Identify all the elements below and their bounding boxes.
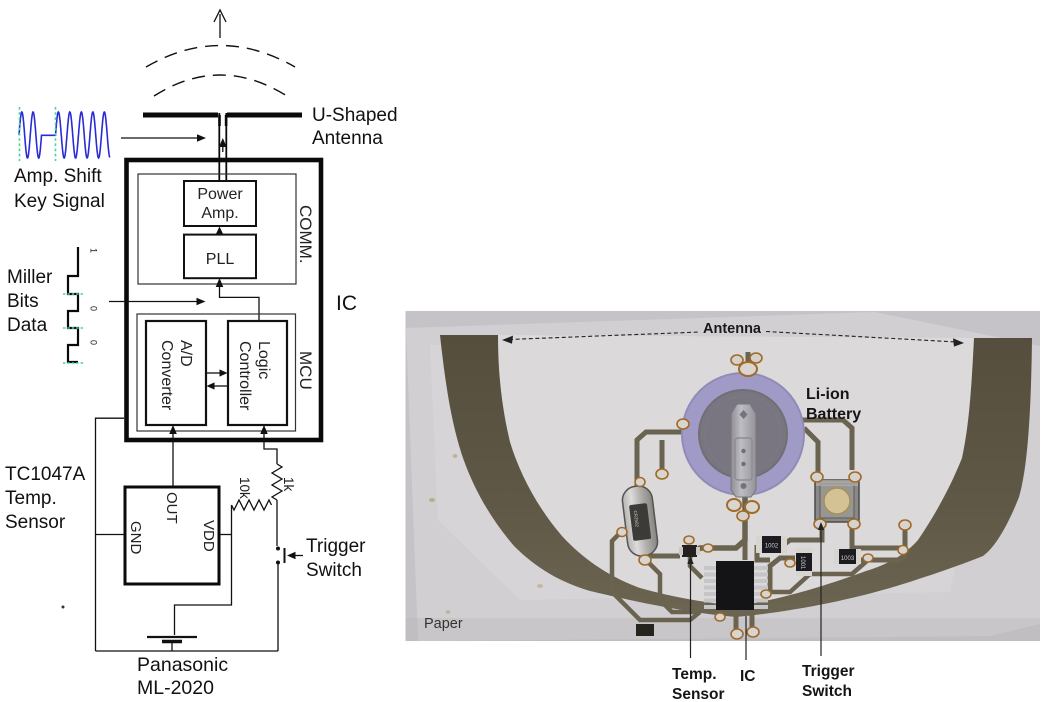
svg-text:Battery: Battery: [806, 406, 861, 423]
svg-text:VDD: VDD: [200, 520, 217, 552]
svg-text:Antenna: Antenna: [703, 321, 762, 337]
svg-text:Sensor: Sensor: [672, 686, 725, 702]
svg-text:0: 0: [89, 340, 99, 345]
svg-text:Temp.: Temp.: [672, 666, 717, 683]
svg-text:10k: 10k: [237, 477, 252, 499]
svg-text:1: 1: [89, 248, 99, 253]
svg-text:0: 0: [89, 306, 99, 311]
svg-text:1002: 1002: [765, 544, 779, 550]
svg-text:Li-ion: Li-ion: [806, 386, 850, 403]
svg-text:Antenna: Antenna: [312, 128, 383, 149]
svg-text:Switch: Switch: [306, 560, 362, 581]
svg-text:1k: 1k: [281, 477, 296, 492]
svg-text:Data: Data: [7, 315, 48, 336]
svg-text:IC: IC: [740, 668, 756, 685]
svg-text:IC: IC: [336, 292, 357, 315]
svg-text:Amp. Shift: Amp. Shift: [14, 166, 102, 187]
svg-text:GND: GND: [127, 521, 144, 555]
svg-text:Key Signal: Key Signal: [14, 191, 105, 212]
svg-text:Sensor: Sensor: [5, 512, 66, 533]
svg-text:OUT: OUT: [163, 492, 180, 524]
svg-text:Switch: Switch: [802, 683, 852, 700]
svg-text:COMM.: COMM.: [296, 205, 315, 264]
svg-text:PLL: PLL: [206, 251, 235, 268]
svg-text:1003: 1003: [841, 556, 855, 562]
svg-text:Miller: Miller: [7, 267, 53, 288]
svg-text:ML-2020: ML-2020: [137, 677, 214, 699]
svg-text:Bits: Bits: [7, 291, 39, 312]
svg-text:1001: 1001: [799, 556, 805, 570]
svg-text:Power: Power: [197, 186, 243, 203]
svg-text:Amp.: Amp.: [201, 205, 238, 222]
svg-text:Temp.: Temp.: [5, 488, 57, 509]
svg-text:Paper: Paper: [424, 616, 463, 632]
svg-text:TC1047A: TC1047A: [5, 464, 86, 485]
svg-text:U-Shaped: U-Shaped: [312, 105, 398, 126]
svg-text:Trigger: Trigger: [802, 663, 855, 680]
svg-text:MCU: MCU: [296, 351, 315, 390]
svg-text:Panasonic: Panasonic: [137, 654, 228, 676]
svg-text:Trigger: Trigger: [306, 536, 366, 557]
